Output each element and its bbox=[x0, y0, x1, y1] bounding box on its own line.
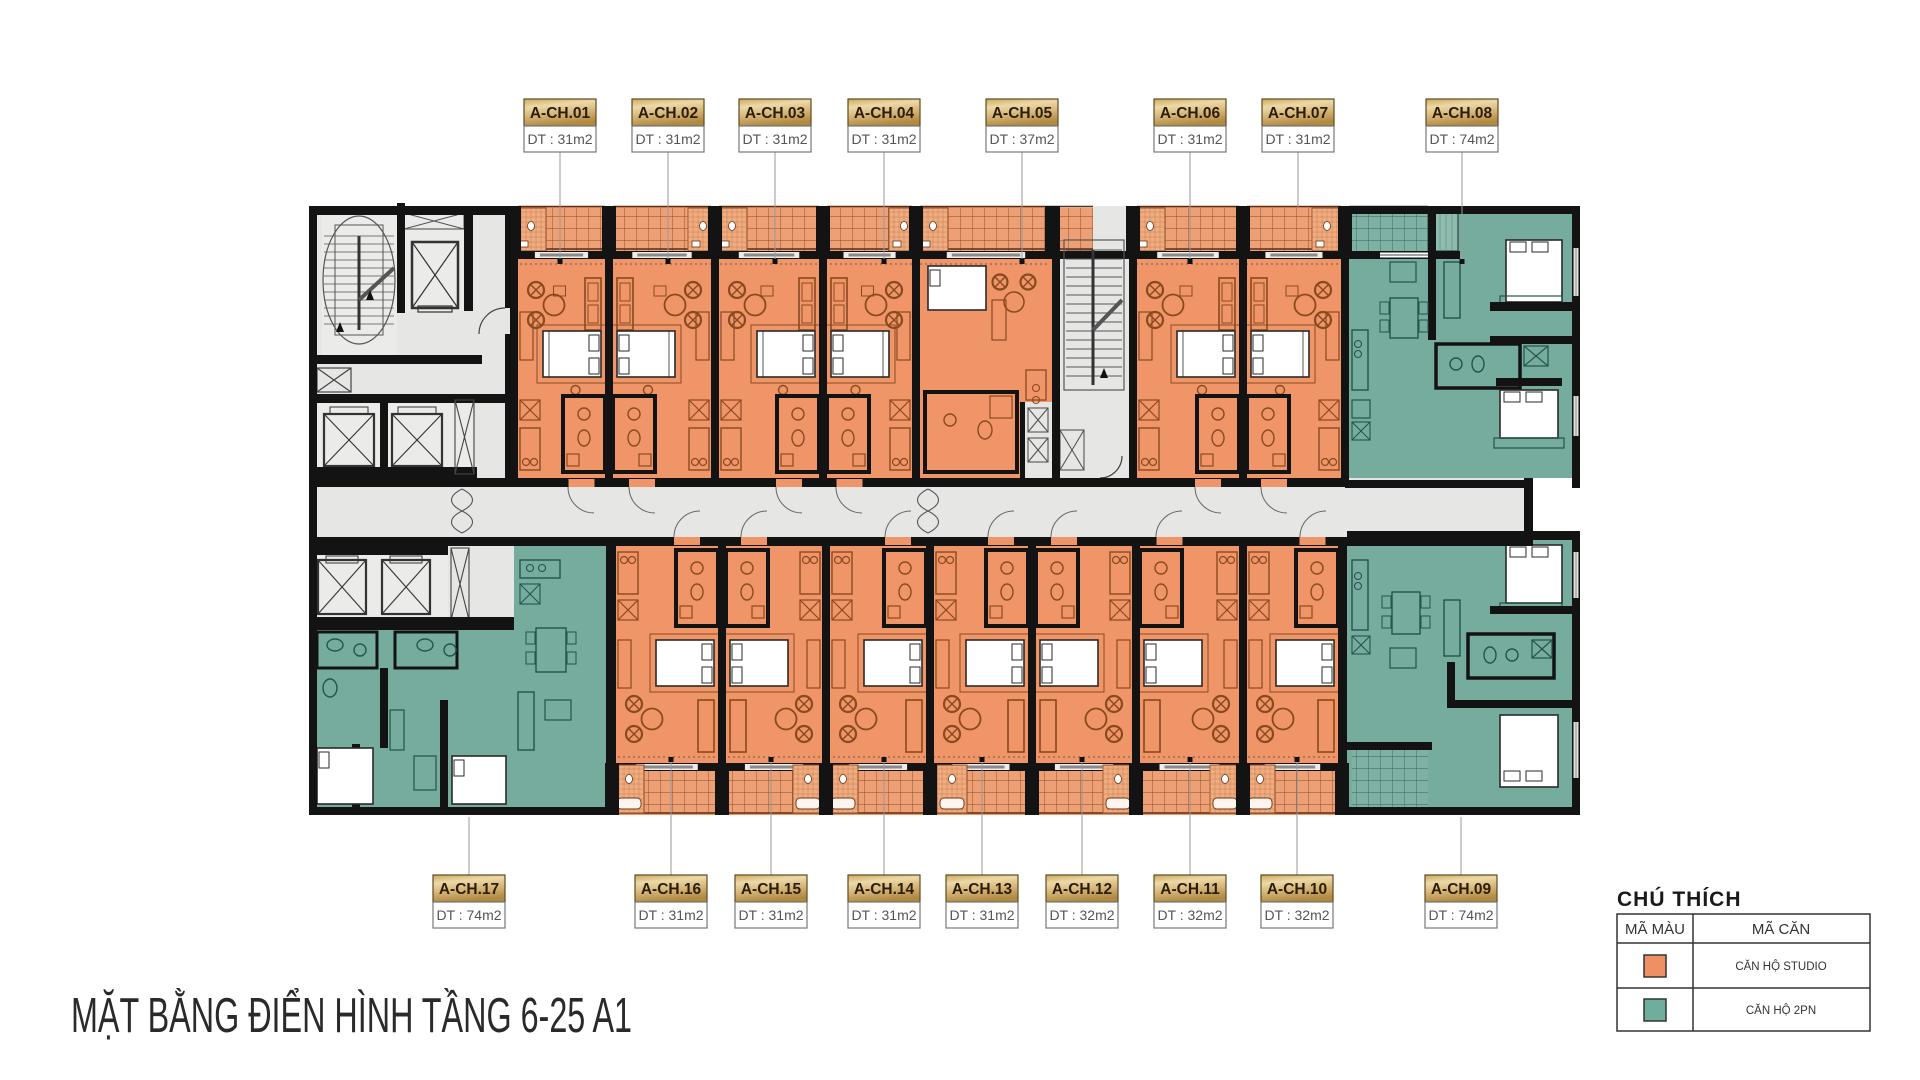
svg-text:CHÚ THÍCH: CHÚ THÍCH bbox=[1617, 887, 1742, 911]
svg-text:CĂN HỘ 2PN: CĂN HỘ 2PN bbox=[1746, 1004, 1816, 1017]
svg-text:DT : 74m2: DT : 74m2 bbox=[1428, 907, 1493, 923]
svg-text:A-CH.12: A-CH.12 bbox=[1052, 881, 1112, 898]
svg-text:DT : 31m2: DT : 31m2 bbox=[851, 131, 916, 147]
svg-text:DT : 31m2: DT : 31m2 bbox=[527, 131, 592, 147]
svg-text:A-CH.13: A-CH.13 bbox=[952, 881, 1013, 898]
svg-text:CĂN HỘ STUDIO: CĂN HỘ STUDIO bbox=[1735, 960, 1826, 973]
svg-text:A-CH.03: A-CH.03 bbox=[745, 105, 806, 122]
svg-text:DT : 31m2: DT : 31m2 bbox=[851, 907, 916, 923]
svg-text:DT : 31m2: DT : 31m2 bbox=[949, 907, 1014, 923]
svg-text:A-CH.09: A-CH.09 bbox=[1431, 881, 1492, 898]
svg-text:A-CH.07: A-CH.07 bbox=[1268, 105, 1328, 122]
svg-text:A-CH.01: A-CH.01 bbox=[530, 105, 591, 122]
svg-text:A-CH.02: A-CH.02 bbox=[638, 105, 698, 122]
svg-text:A-CH.06: A-CH.06 bbox=[1160, 105, 1221, 122]
svg-text:DT : 74m2: DT : 74m2 bbox=[436, 907, 501, 923]
svg-text:DT : 32m2: DT : 32m2 bbox=[1264, 907, 1329, 923]
svg-text:A-CH.10: A-CH.10 bbox=[1267, 881, 1327, 898]
svg-text:A-CH.04: A-CH.04 bbox=[854, 105, 915, 122]
svg-text:DT : 74m2: DT : 74m2 bbox=[1429, 131, 1494, 147]
svg-text:MÃ CĂN: MÃ CĂN bbox=[1752, 921, 1810, 938]
svg-text:A-CH.05: A-CH.05 bbox=[992, 105, 1053, 122]
svg-text:MÃ MÀU: MÃ MÀU bbox=[1625, 921, 1685, 938]
svg-text:DT : 32m2: DT : 32m2 bbox=[1049, 907, 1114, 923]
svg-text:A-CH.11: A-CH.11 bbox=[1160, 881, 1220, 898]
svg-text:DT : 31m2: DT : 31m2 bbox=[742, 131, 807, 147]
svg-text:DT : 32m2: DT : 32m2 bbox=[1157, 907, 1222, 923]
svg-text:A-CH.08: A-CH.08 bbox=[1432, 105, 1493, 122]
svg-text:DT : 31m2: DT : 31m2 bbox=[638, 907, 703, 923]
svg-text:A-CH.14: A-CH.14 bbox=[854, 881, 915, 898]
svg-text:A-CH.16: A-CH.16 bbox=[641, 881, 702, 898]
svg-text:DT : 31m2: DT : 31m2 bbox=[1265, 131, 1330, 147]
svg-text:A-CH.17: A-CH.17 bbox=[439, 881, 499, 898]
svg-text:DT : 31m2: DT : 31m2 bbox=[635, 131, 700, 147]
svg-text:DT : 31m2: DT : 31m2 bbox=[1157, 131, 1222, 147]
svg-text:DT : 37m2: DT : 37m2 bbox=[989, 131, 1054, 147]
svg-text:MẶT BẰNG ĐIỂN HÌNH TẦNG 6-25 A: MẶT BẰNG ĐIỂN HÌNH TẦNG 6-25 A1 bbox=[71, 988, 632, 1043]
svg-text:A-CH.15: A-CH.15 bbox=[741, 881, 802, 898]
svg-text:DT : 31m2: DT : 31m2 bbox=[738, 907, 803, 923]
